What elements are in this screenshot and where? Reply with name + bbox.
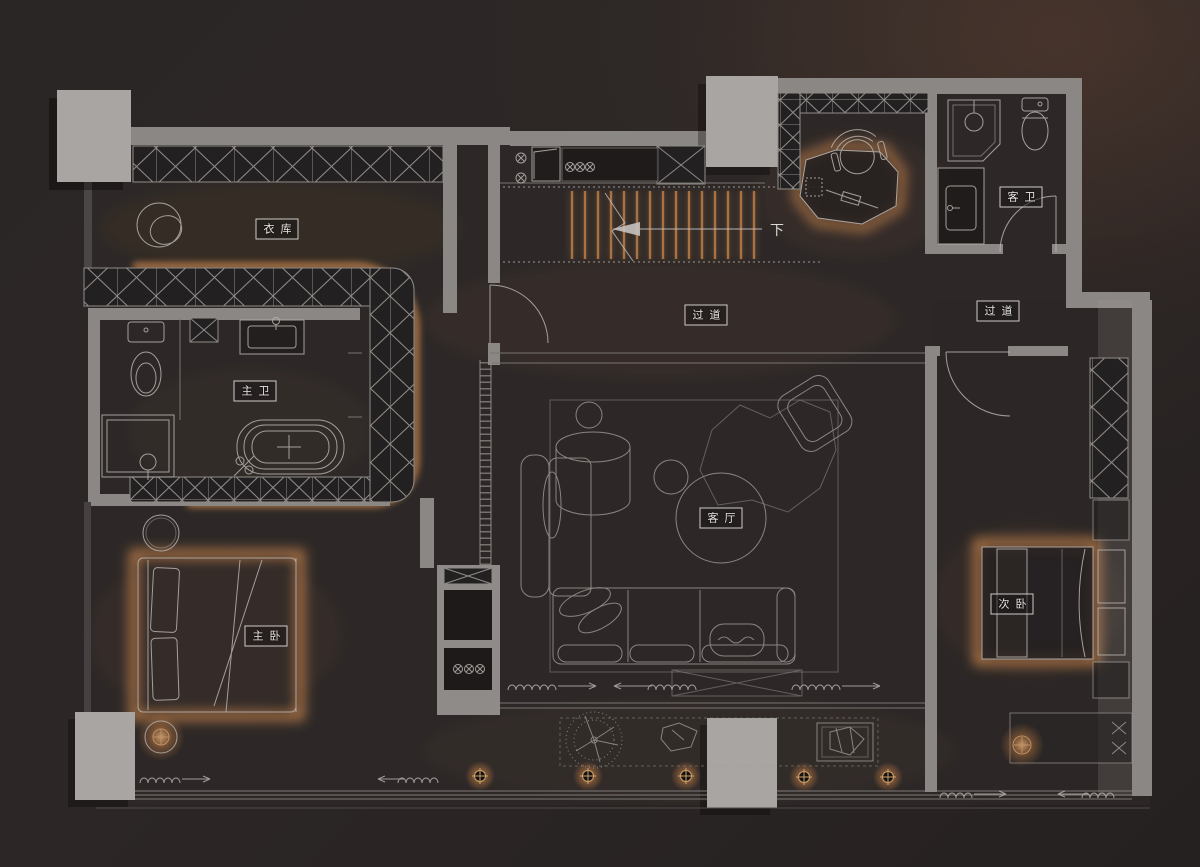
room-label-corridor-east: 过道 [977,301,1020,322]
room-label-guest-bath: 客卫 [1000,187,1043,208]
spotlight [671,761,701,791]
room-label-corridor-center: 过道 [685,305,728,326]
vanity-guest [938,168,984,244]
tv-cabinet [437,565,500,715]
balcony-bench [1000,713,1132,767]
storage-box [1093,662,1129,698]
spotlight [873,762,903,792]
spotlight [465,761,495,791]
room-label-master-bedroom: 主卧 [245,626,288,647]
floor-plan-drawing [0,0,1200,867]
storage-box [1093,500,1129,540]
spotlight [789,762,819,792]
room-label-master-bath: 主卫 [234,381,277,402]
spotlight [573,761,603,791]
floor-lamp [137,713,185,761]
kitchen-counter [516,147,658,183]
room-label-secondary-bedroom: 次卧 [991,594,1034,615]
floor-plan-canvas: 衣库 主卫 主卧 过道 过道 客厅 次卧 客卫 下 [0,0,1200,867]
room-label-cloakroom: 衣库 [256,219,299,240]
vanity-sink [240,318,304,355]
stairs-down-label: 下 [770,224,784,238]
room-label-living-room: 客厅 [700,508,743,529]
